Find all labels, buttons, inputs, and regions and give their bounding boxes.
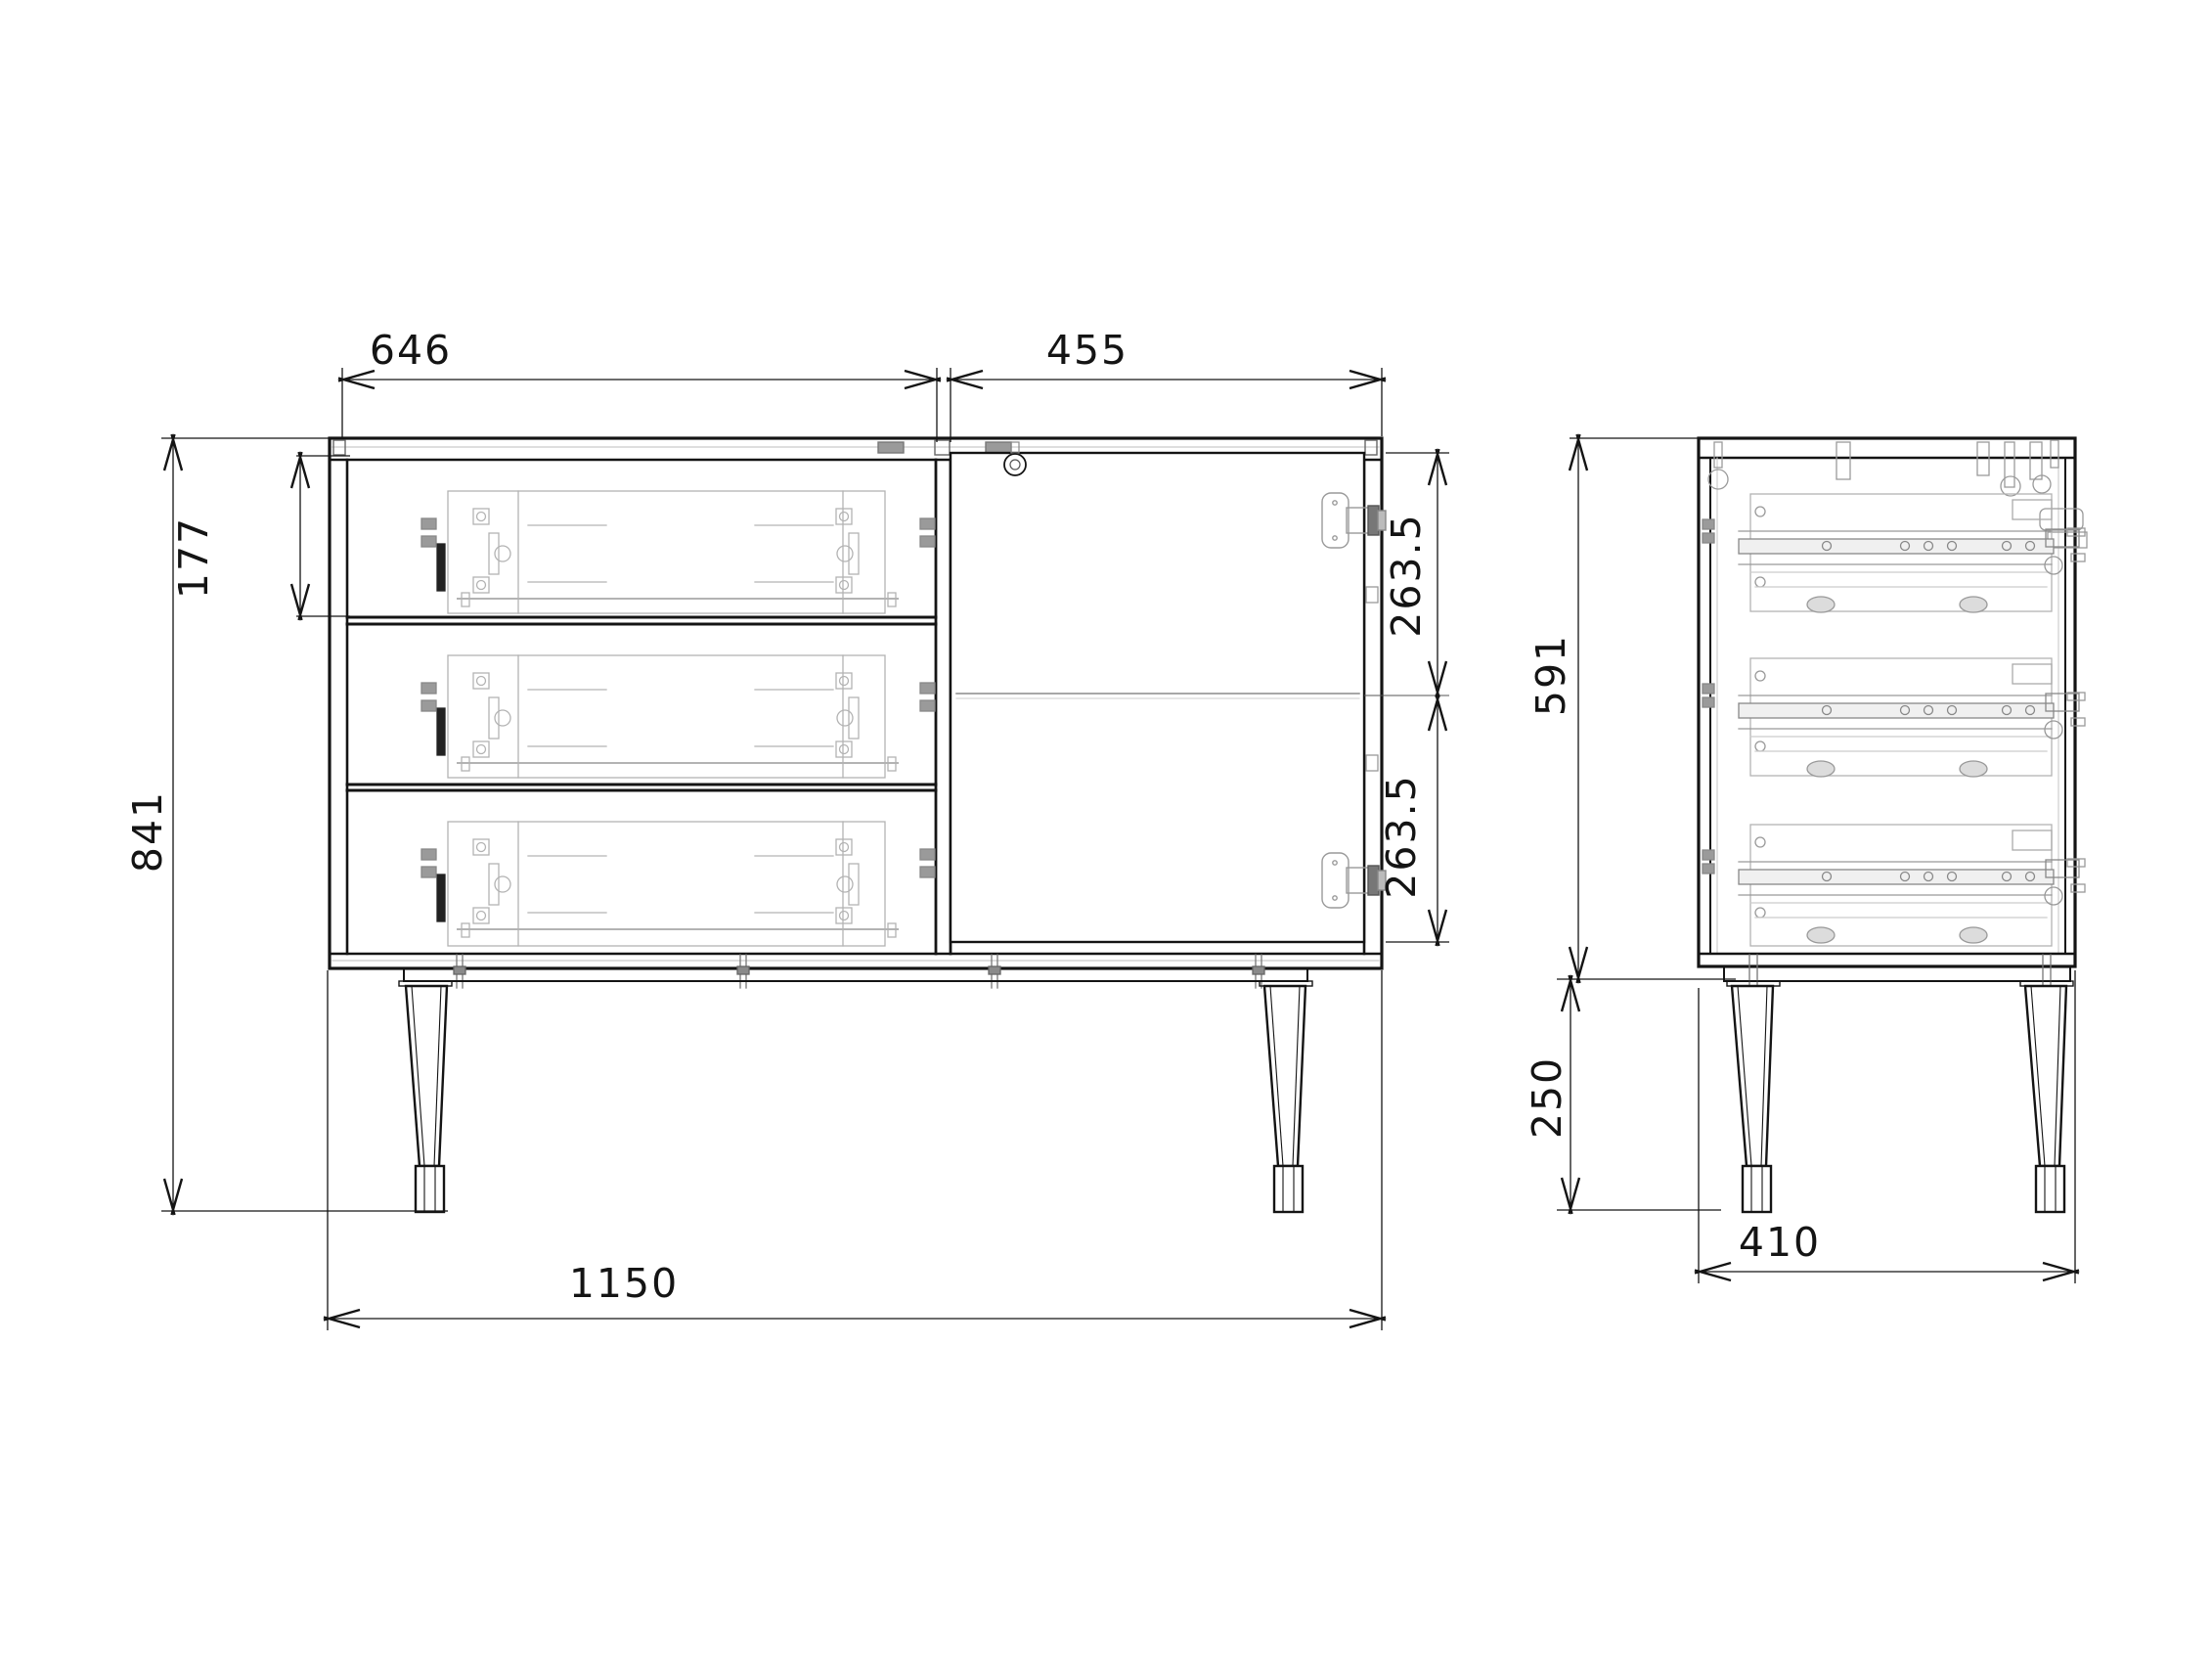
dim-door-section-width: 455: [951, 327, 1382, 442]
drawer-2-lock: [437, 708, 445, 755]
side-leg-front: [1727, 981, 1780, 1212]
dim-label-door-lower-half: 263.5: [1378, 774, 1425, 898]
dim-carcass-height: 591: [1527, 438, 1699, 979]
leg-foot-sleeve: [416, 1166, 444, 1212]
dim-leg-height: 250: [1524, 979, 1736, 1210]
dim-label-overall-width: 1150: [569, 1260, 679, 1307]
dim-door-lower-half: 263.5: [1378, 698, 1449, 942]
dim-label-leg-height: 250: [1524, 1056, 1571, 1139]
front-leg-left: [399, 981, 452, 1212]
front-view: [330, 438, 1386, 1212]
leg-foot-sleeve: [2036, 1166, 2064, 1212]
dim-drawer-front-height: 177: [170, 456, 350, 616]
leg-foot-sleeve: [1743, 1166, 1771, 1212]
side-leg-back: [2020, 981, 2073, 1212]
door: [951, 442, 1386, 942]
dim-label-door-upper-half: 263.5: [1383, 513, 1430, 637]
dim-drawer-section-width: 646: [342, 327, 937, 442]
drawer-1-lock: [437, 544, 445, 591]
drawer-3-lock: [437, 874, 445, 921]
dim-label-overall-height: 841: [124, 790, 171, 873]
side-view: [1699, 438, 2087, 1212]
technical-drawing-canvas: 646 455 177 841 263.5: [0, 0, 2212, 1659]
door-panel: [951, 453, 1364, 942]
dim-label-drawer-front-height: 177: [170, 516, 217, 599]
dim-overall-width: 1150: [328, 970, 1382, 1330]
front-leg-right: [1260, 981, 1312, 1212]
drawing-sheet: 646 455 177 841 263.5: [0, 0, 2212, 1659]
front-plinth: [404, 968, 1307, 981]
side-carcass-outline: [1699, 438, 2075, 966]
dim-label-depth: 410: [1739, 1219, 1821, 1266]
dim-label-drawer-section-width: 646: [370, 327, 452, 374]
side-plinth: [1724, 966, 2070, 981]
dim-label-door-section-width: 455: [1046, 327, 1128, 374]
dim-label-carcass-height: 591: [1527, 634, 1574, 716]
leg-foot-sleeve: [1274, 1166, 1303, 1212]
